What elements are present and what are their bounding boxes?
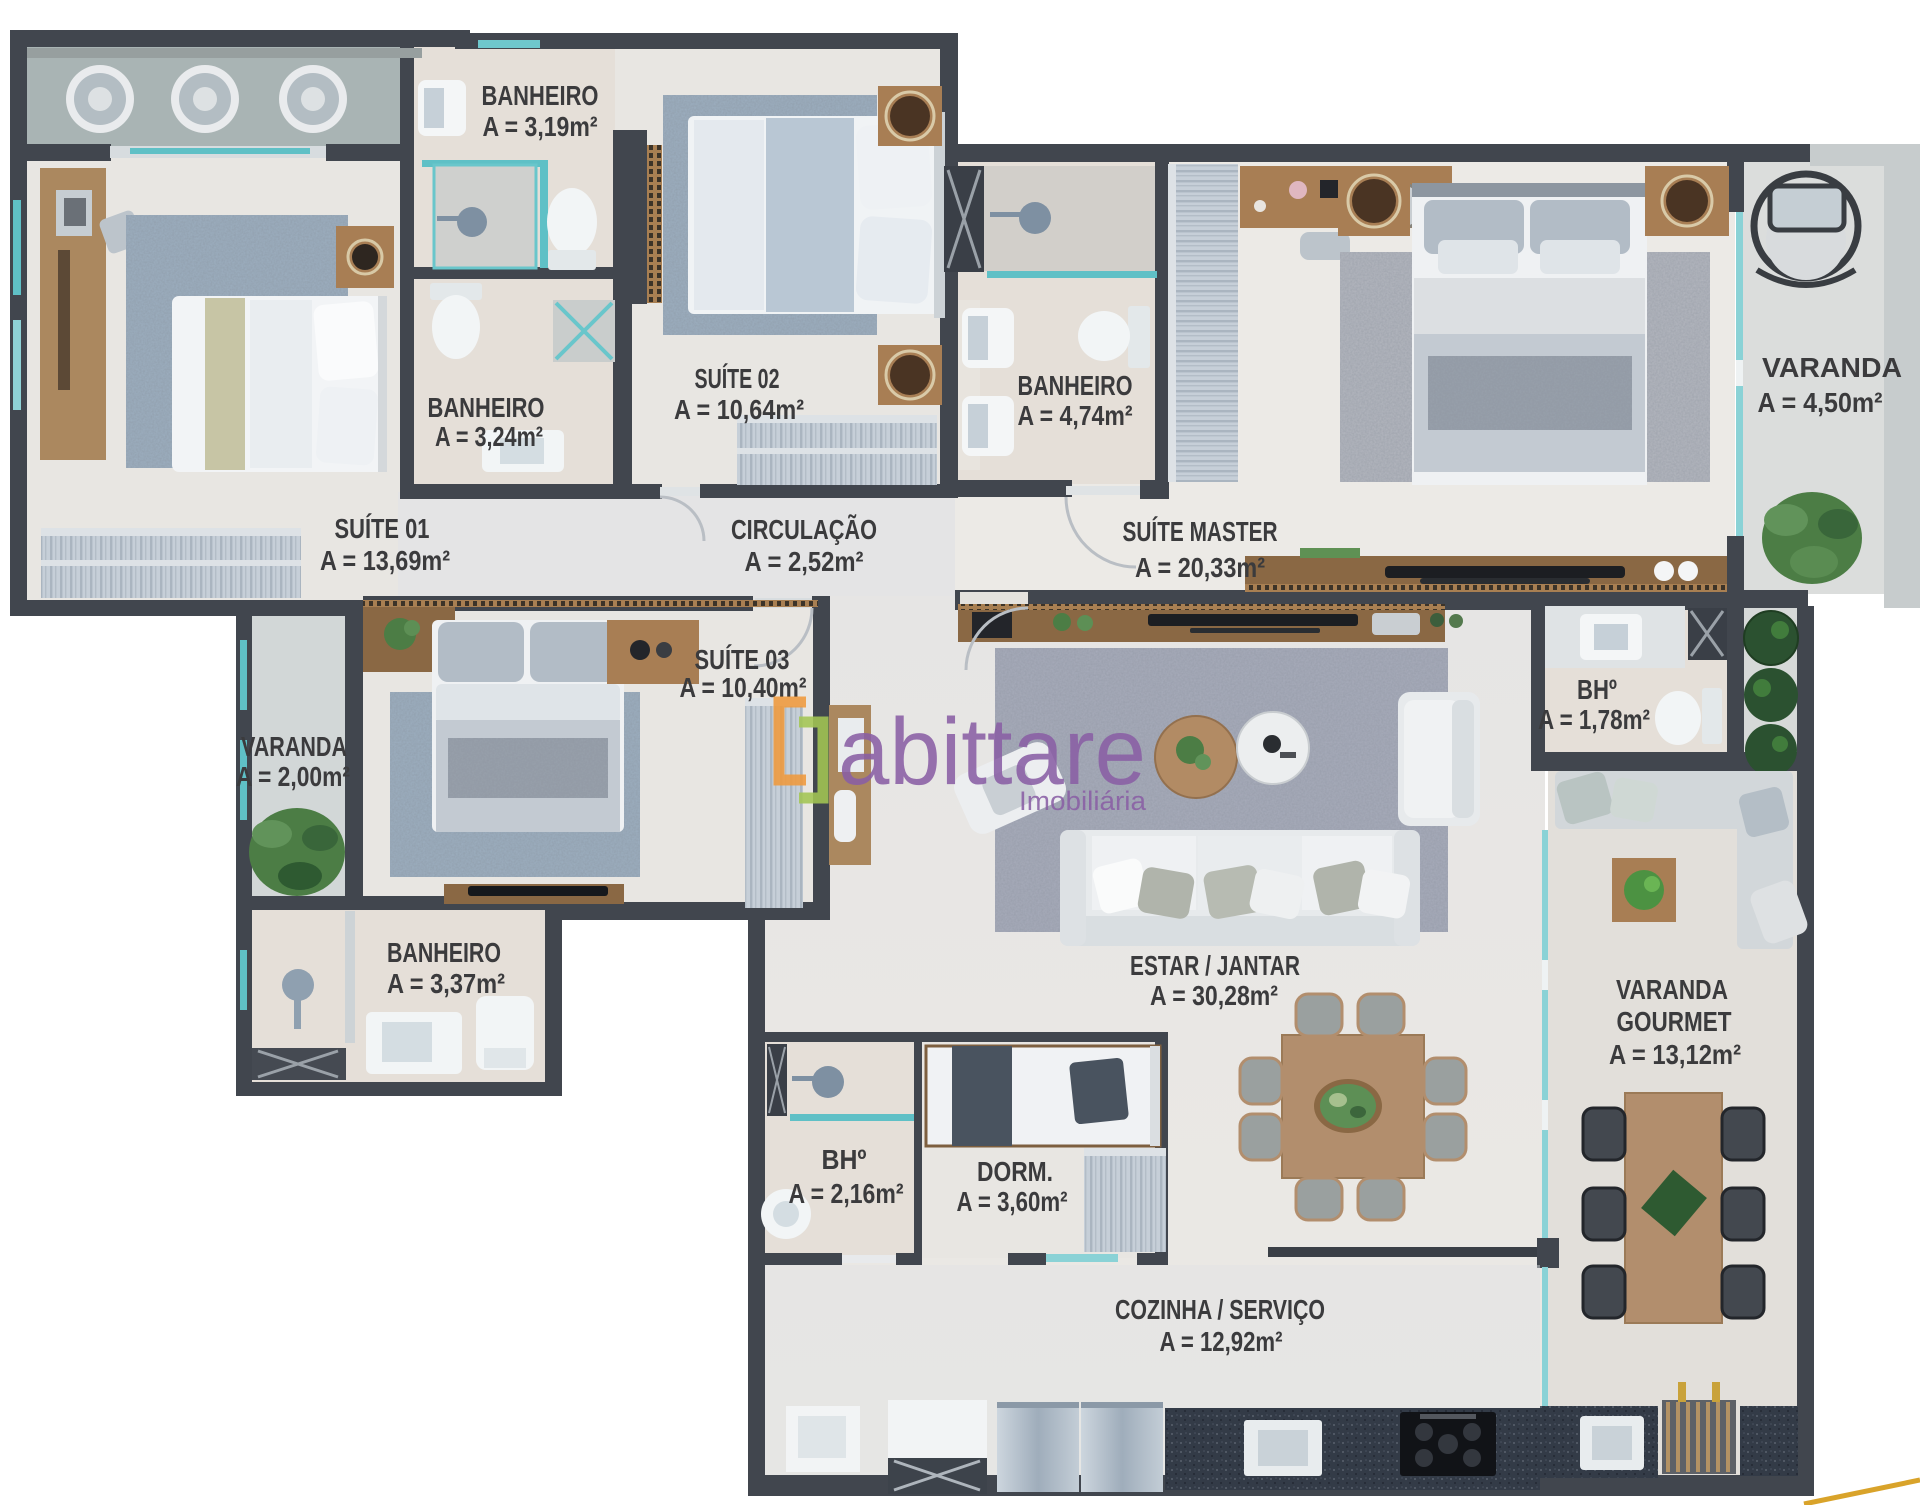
svg-text:VARANDA: VARANDA [1762,352,1902,383]
svg-text:A = 2,00m²: A = 2,00m² [236,761,350,792]
svg-text:SUÍTE 03: SUÍTE 03 [695,644,790,675]
svg-text:A = 4,74m²: A = 4,74m² [1018,400,1133,431]
svg-text:BANHEIRO: BANHEIRO [428,392,545,423]
svg-text:BANHEIRO: BANHEIRO [1018,370,1133,401]
svg-text:A = 3,24m²: A = 3,24m² [435,421,543,452]
svg-text:BANHEIRO: BANHEIRO [482,80,599,111]
svg-text:BHº: BHº [1577,674,1617,705]
svg-text:A = 3,37m²: A = 3,37m² [387,968,505,999]
svg-text:BHº: BHº [822,1144,867,1175]
svg-text:A = 20,33m²: A = 20,33m² [1135,552,1265,583]
svg-text:CIRCULAÇÃO: CIRCULAÇÃO [731,514,877,545]
svg-text:A = 2,52m²: A = 2,52m² [745,546,864,577]
svg-text:A = 4,50m²: A = 4,50m² [1758,387,1883,418]
svg-text:BANHEIRO: BANHEIRO [387,937,501,968]
svg-text:A = 12,92m²: A = 12,92m² [1160,1326,1283,1357]
svg-text:ESTAR / JANTAR: ESTAR / JANTAR [1130,950,1300,981]
svg-text:A = 13,12m²: A = 13,12m² [1609,1039,1741,1070]
svg-text:SUÍTE 01: SUÍTE 01 [335,513,430,544]
svg-text:A = 30,28m²: A = 30,28m² [1150,980,1278,1011]
svg-text:SUÍTE MASTER: SUÍTE MASTER [1123,516,1278,547]
svg-text:COZINHA / SERVIÇO: COZINHA / SERVIÇO [1115,1294,1325,1325]
svg-text:DORM.: DORM. [977,1156,1053,1187]
svg-text:VARANDA: VARANDA [241,731,347,762]
svg-text:A = 3,60m²: A = 3,60m² [957,1186,1068,1217]
svg-text:A = 1,78m²: A = 1,78m² [1538,704,1650,735]
svg-text:A = 10,64m²: A = 10,64m² [674,394,804,425]
svg-text:Imobiliária: Imobiliária [1019,786,1147,816]
svg-text:VARANDA: VARANDA [1616,974,1728,1005]
svg-text:A = 13,69m²: A = 13,69m² [320,545,450,576]
svg-text:A = 3,19m²: A = 3,19m² [483,111,598,142]
svg-text:SUÍTE 02: SUÍTE 02 [695,363,780,394]
svg-text:A = 2,16m²: A = 2,16m² [789,1178,904,1209]
svg-text:GOURMET: GOURMET [1617,1006,1732,1037]
